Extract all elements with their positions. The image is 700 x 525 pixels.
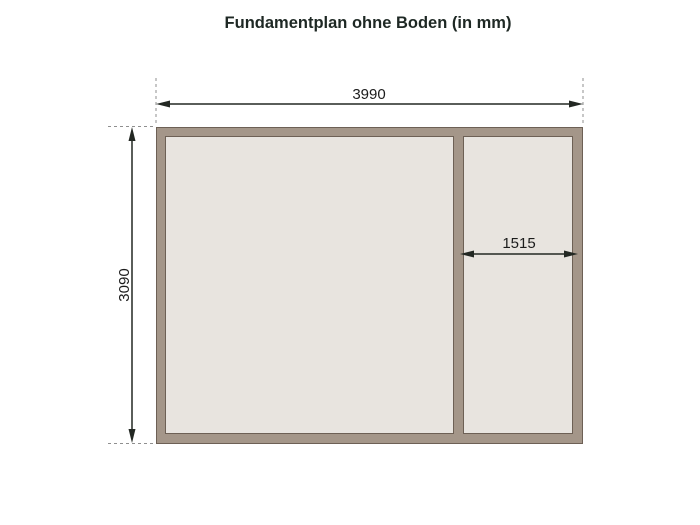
dimension-label-depth: 3090 bbox=[116, 268, 133, 301]
foundation-plan-page: Fundamentplan ohne Boden (in mm) 3990 30… bbox=[0, 0, 700, 525]
dimension-label-width: 3990 bbox=[352, 86, 385, 103]
dimension-label-partition: 1515 bbox=[502, 235, 535, 252]
foundation-plan-diagram: Fundamentplan ohne Boden (in mm) 3990 30… bbox=[0, 0, 700, 525]
foundation-frame bbox=[157, 128, 583, 444]
diagram-title: Fundamentplan ohne Boden (in mm) bbox=[225, 14, 512, 32]
right-bay-panel bbox=[464, 137, 573, 434]
left-bay-panel bbox=[166, 137, 454, 434]
